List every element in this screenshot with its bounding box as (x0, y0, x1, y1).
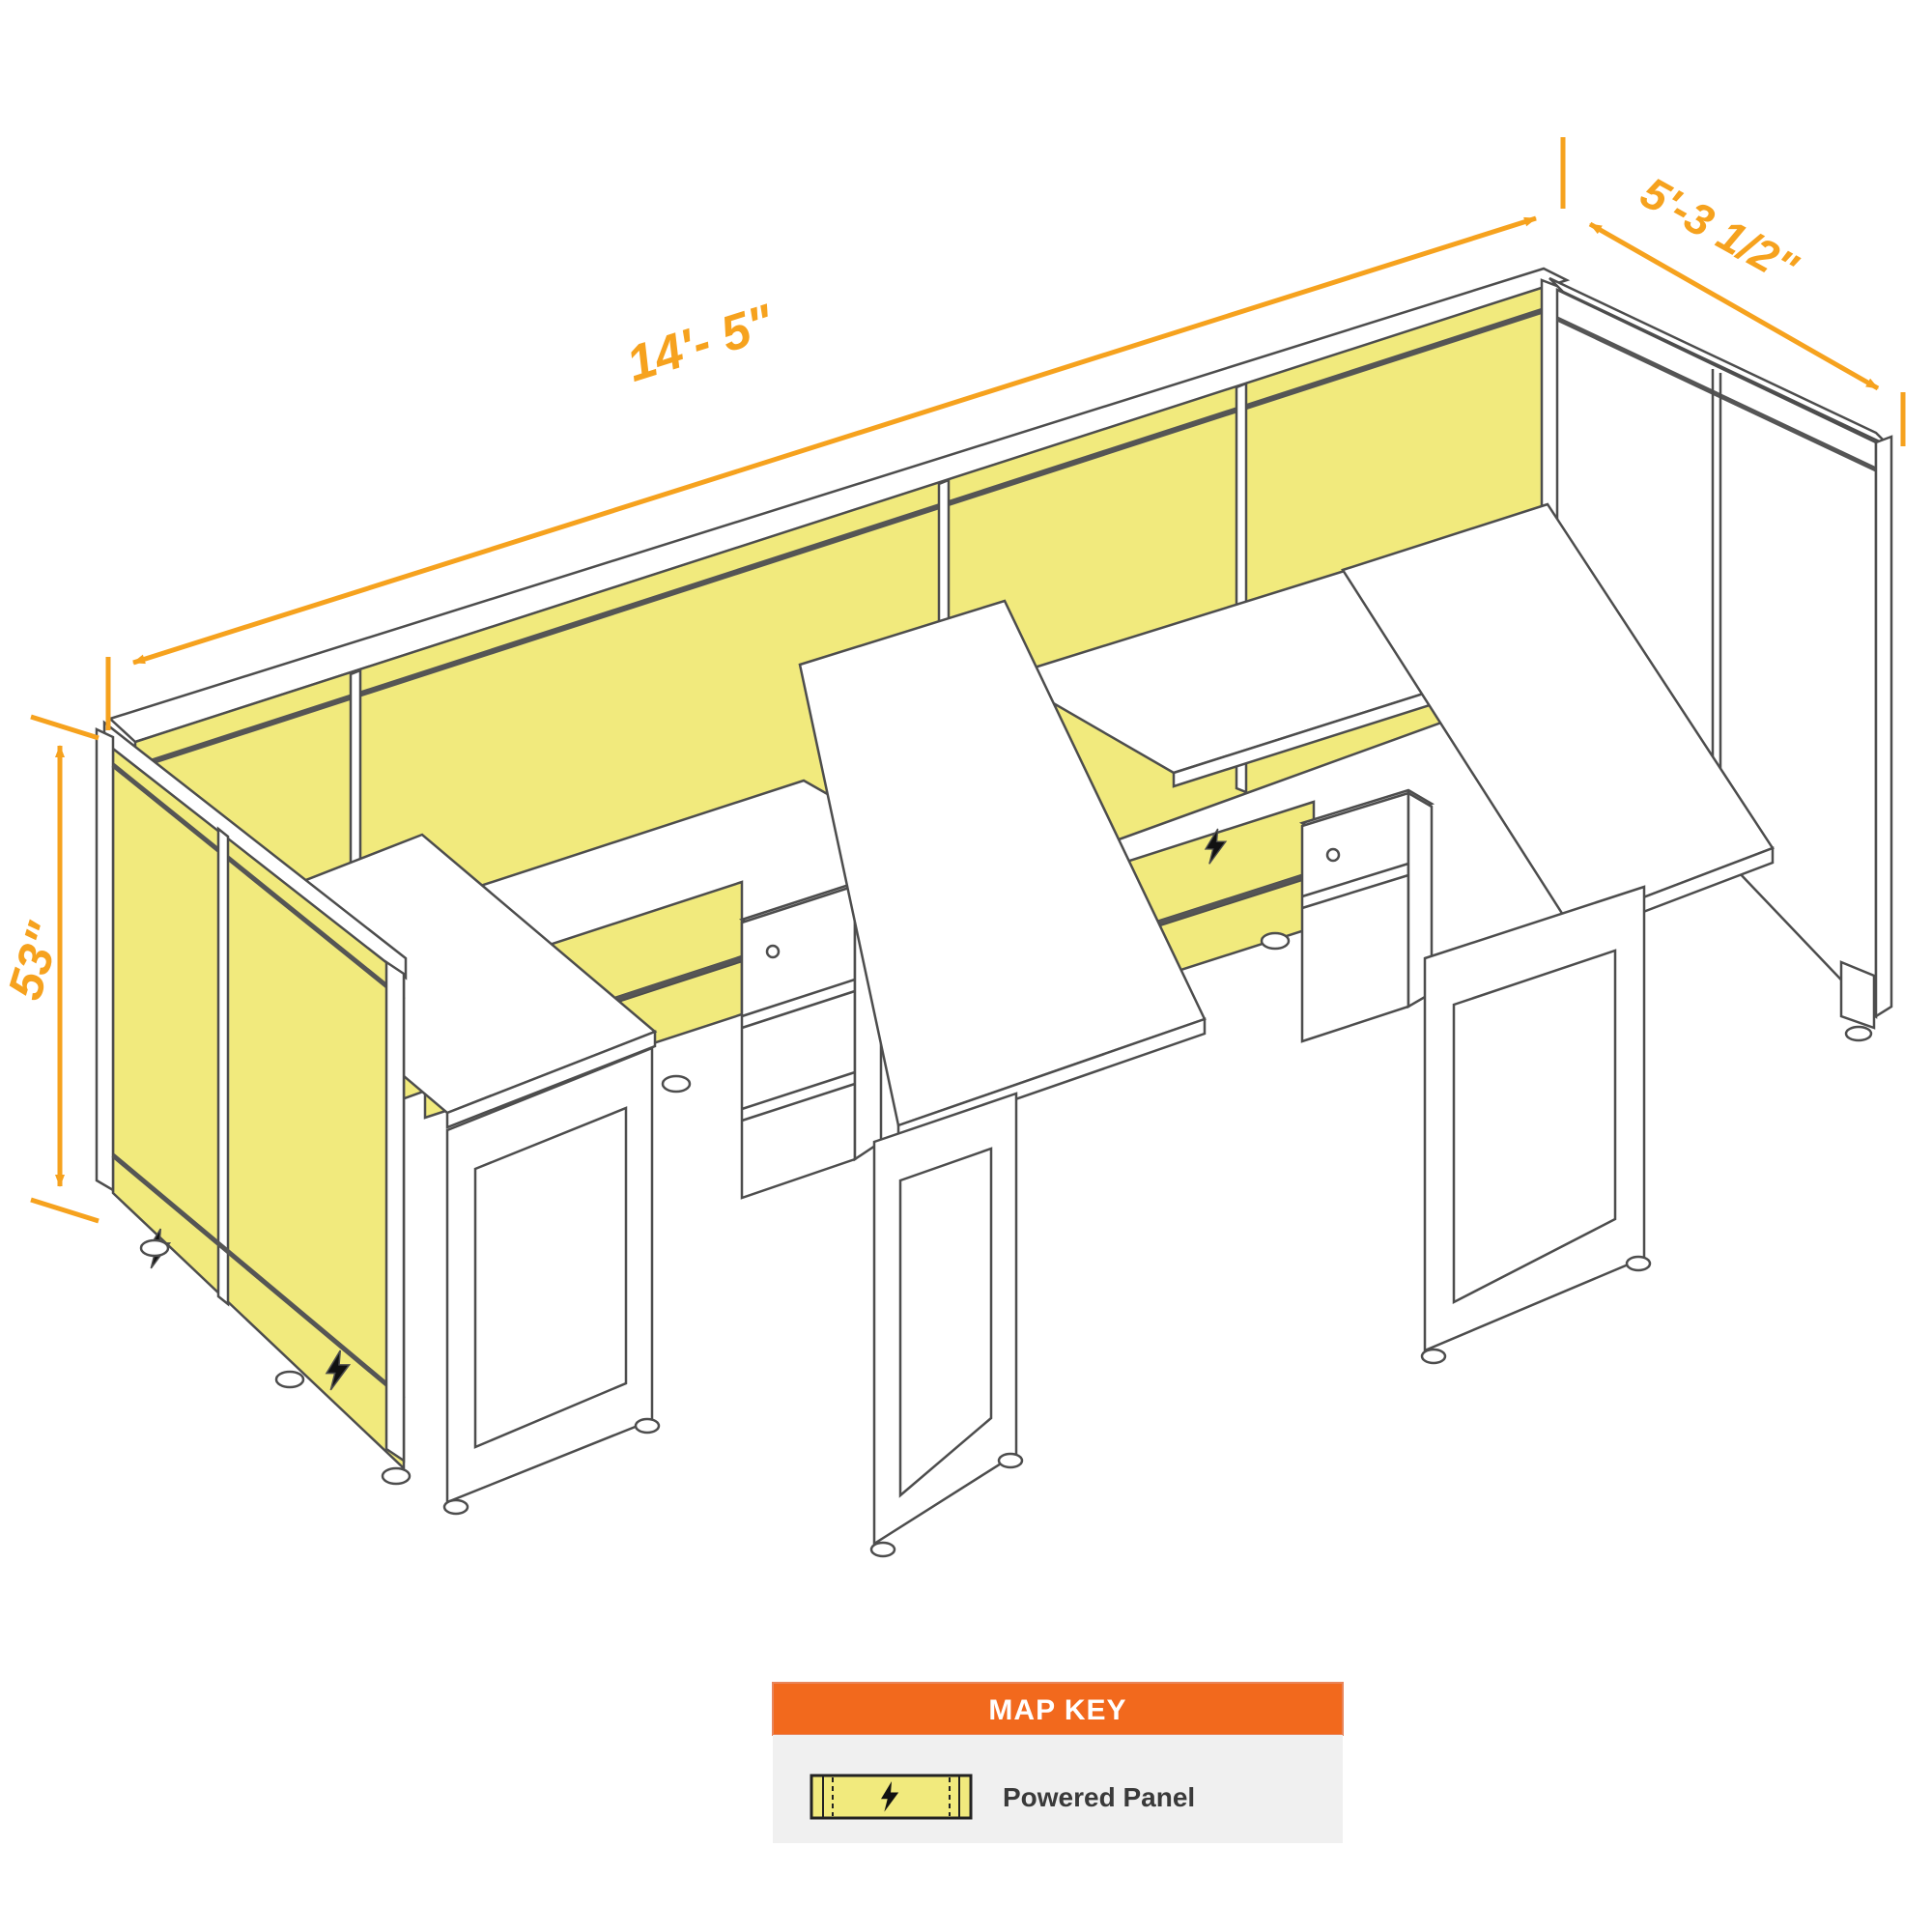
map-key: MAP KEY Powered Panel (773, 1683, 1343, 1843)
width-dimension-label: 14'- 5" (620, 294, 781, 392)
right-wall-outer-edge (1876, 437, 1891, 1016)
pedestal-front (742, 886, 855, 1198)
left-wall-end-post (386, 962, 404, 1461)
left-wall-outer-edge (97, 729, 113, 1190)
depth-dimension-label: 5'-3 1/2" (1633, 167, 1806, 294)
map-key-title: MAP KEY (988, 1694, 1126, 1726)
right-wall-foot (1846, 1027, 1871, 1040)
dimension-tick (31, 1200, 99, 1221)
dimension-tick (31, 717, 99, 738)
powered-panel-swatch (811, 1776, 971, 1818)
powered-panel-label: Powered Panel (1003, 1782, 1195, 1812)
left-wall-panel-joint (218, 829, 228, 1304)
cubicle-diagram-page: 14'- 5" 5'-3 1/2" 53" MAP KEY Powered Pa… (0, 0, 1932, 1932)
cubicle-isometric-drawing: 14'- 5" 5'-3 1/2" 53" MAP KEY Powered Pa… (0, 0, 1932, 1932)
hanging-pedestal-right-return (1302, 790, 1432, 1041)
